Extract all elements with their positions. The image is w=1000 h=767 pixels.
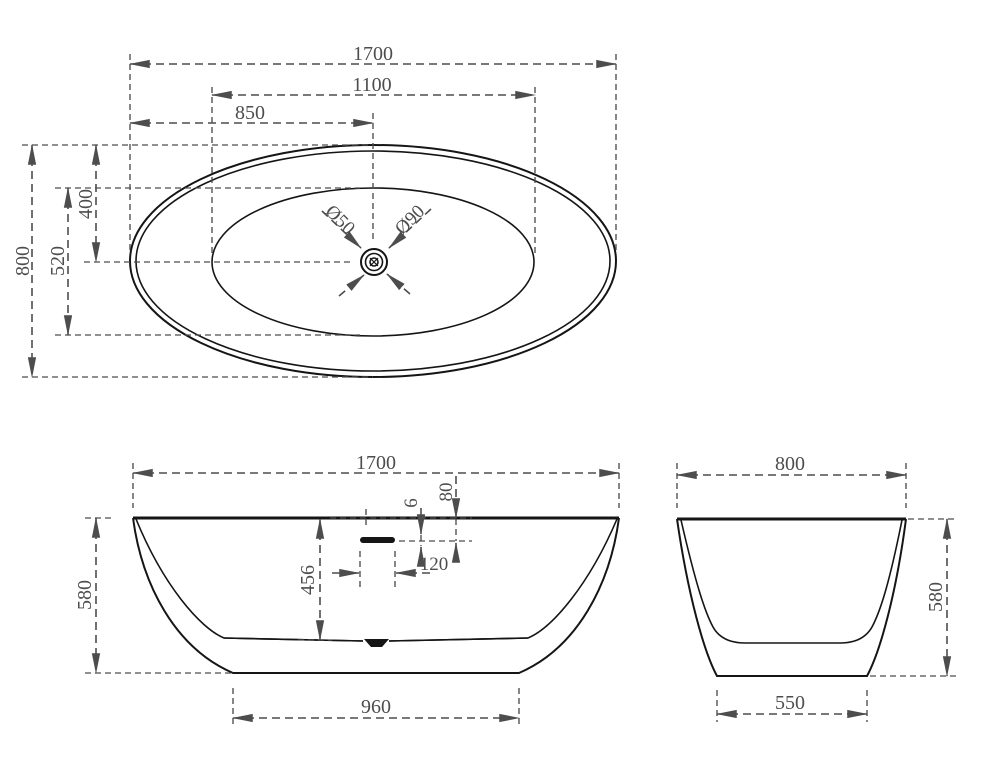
dim-side-overall-height: 580 (925, 582, 947, 612)
side-view: 800 580 550 (677, 453, 956, 722)
top-view-extension-lines (22, 54, 616, 377)
dim-drain-small-diameter: Ø50 (321, 201, 359, 239)
bathtub-drawing: 1700 1100 850 800 520 400 Ø50 Ø90 (0, 0, 1000, 767)
dim-front-overflow-slot-height: 6 (401, 498, 422, 508)
drain-symbol (361, 249, 387, 275)
tub-basin-outline (212, 188, 534, 336)
dim-front-overall-height: 580 (74, 580, 96, 610)
top-view: 1700 1100 850 800 520 400 Ø50 Ø90 (12, 43, 616, 377)
dim-top-overall-length: 1700 (353, 43, 393, 65)
front-inner-bottom-right (389, 638, 528, 641)
dim-front-base-length: 960 (361, 696, 391, 718)
dim-top-center-width: 400 (75, 189, 97, 219)
side-outer-wall (677, 519, 906, 676)
dim-front-overall-length: 1700 (356, 452, 396, 474)
dim-side-overall-width: 800 (775, 453, 805, 475)
dim-top-inner-width: 520 (47, 246, 69, 276)
drain-leader-sw (339, 275, 364, 296)
front-view: 1700 80 6 120 456 580 960 (74, 452, 619, 724)
front-overflow-slot (360, 537, 395, 543)
front-inner-bottom-left (224, 638, 363, 641)
front-drain (364, 639, 389, 647)
dim-top-overall-width: 800 (12, 246, 34, 276)
side-view-extension-lines (677, 463, 956, 722)
technical-drawing-canvas: 1700 1100 850 800 520 400 Ø50 Ø90 (0, 0, 1000, 767)
dim-top-center-length: 850 (235, 102, 265, 124)
dim-top-inner-length: 1100 (352, 74, 391, 96)
dim-front-overflow-width: 120 (420, 554, 449, 575)
dim-drain-large-diameter: Ø90 (391, 201, 429, 239)
front-view-extension-lines (85, 463, 619, 724)
side-inner-wall (681, 520, 902, 643)
dim-front-inner-depth: 456 (297, 565, 319, 595)
top-view-dimensions: 1700 1100 850 800 520 400 Ø50 Ø90 (12, 43, 616, 377)
dim-front-rim-to-overflow: 80 (436, 483, 457, 502)
dim-side-base-width: 550 (775, 692, 805, 714)
front-view-dimensions: 1700 80 6 120 456 580 960 (74, 452, 619, 718)
drain-leader-se (387, 274, 410, 294)
